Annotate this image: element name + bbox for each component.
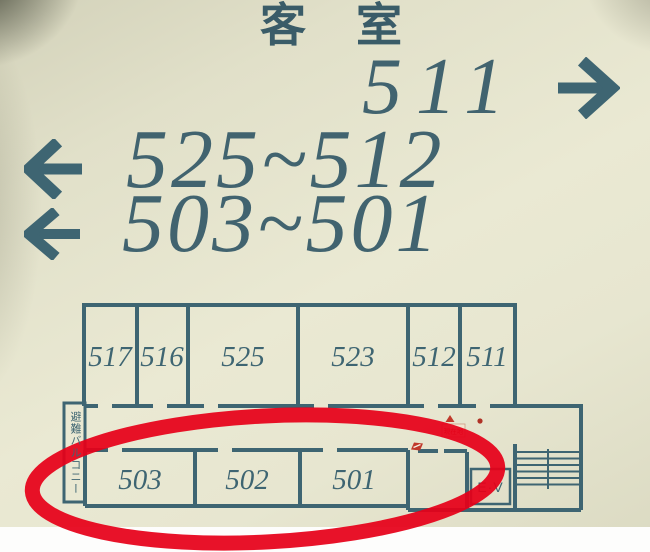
left-arrow-icon <box>24 139 88 199</box>
marker-label: 現在地 <box>444 427 464 436</box>
right-arrow-icon <box>552 57 620 119</box>
floor-guide-sign-photo: 客 室 511 525~512 503~501 避難バルコニー <box>0 0 650 552</box>
room-label-502: 502 <box>225 464 269 496</box>
room-label-516: 516 <box>140 341 184 373</box>
elevator-label: E·V <box>477 479 503 495</box>
floorplan-walls <box>64 305 581 510</box>
room-label-523: 523 <box>331 341 375 373</box>
top-room-labels: 517 516 525 523 512 511 <box>88 341 507 373</box>
room-label-501: 501 <box>332 464 376 496</box>
room-label-503: 503 <box>118 464 162 496</box>
marker-box <box>442 424 465 437</box>
room-label-511: 511 <box>466 341 507 373</box>
room-label-525: 525 <box>221 341 265 373</box>
room-label-517: 517 <box>88 341 133 373</box>
elevator: E·V <box>471 469 510 504</box>
photo-bottom-edge <box>0 527 650 552</box>
left-arrow-icon <box>24 208 86 260</box>
marker-triangle-icon <box>446 415 455 422</box>
evacuation-balcony-label: 避難バルコニー <box>64 404 85 501</box>
fire-equipment-icon <box>411 443 423 451</box>
elevator-box <box>471 469 510 504</box>
red-dot-icon <box>477 418 482 423</box>
bottom-room-labels: 503 502 501 <box>118 464 376 496</box>
direction-row-503-501: 503~501 <box>122 182 440 266</box>
room-label-512: 512 <box>412 341 456 373</box>
you-are-here-marker: 現在地 <box>442 415 483 437</box>
staircase-icon <box>517 449 579 489</box>
